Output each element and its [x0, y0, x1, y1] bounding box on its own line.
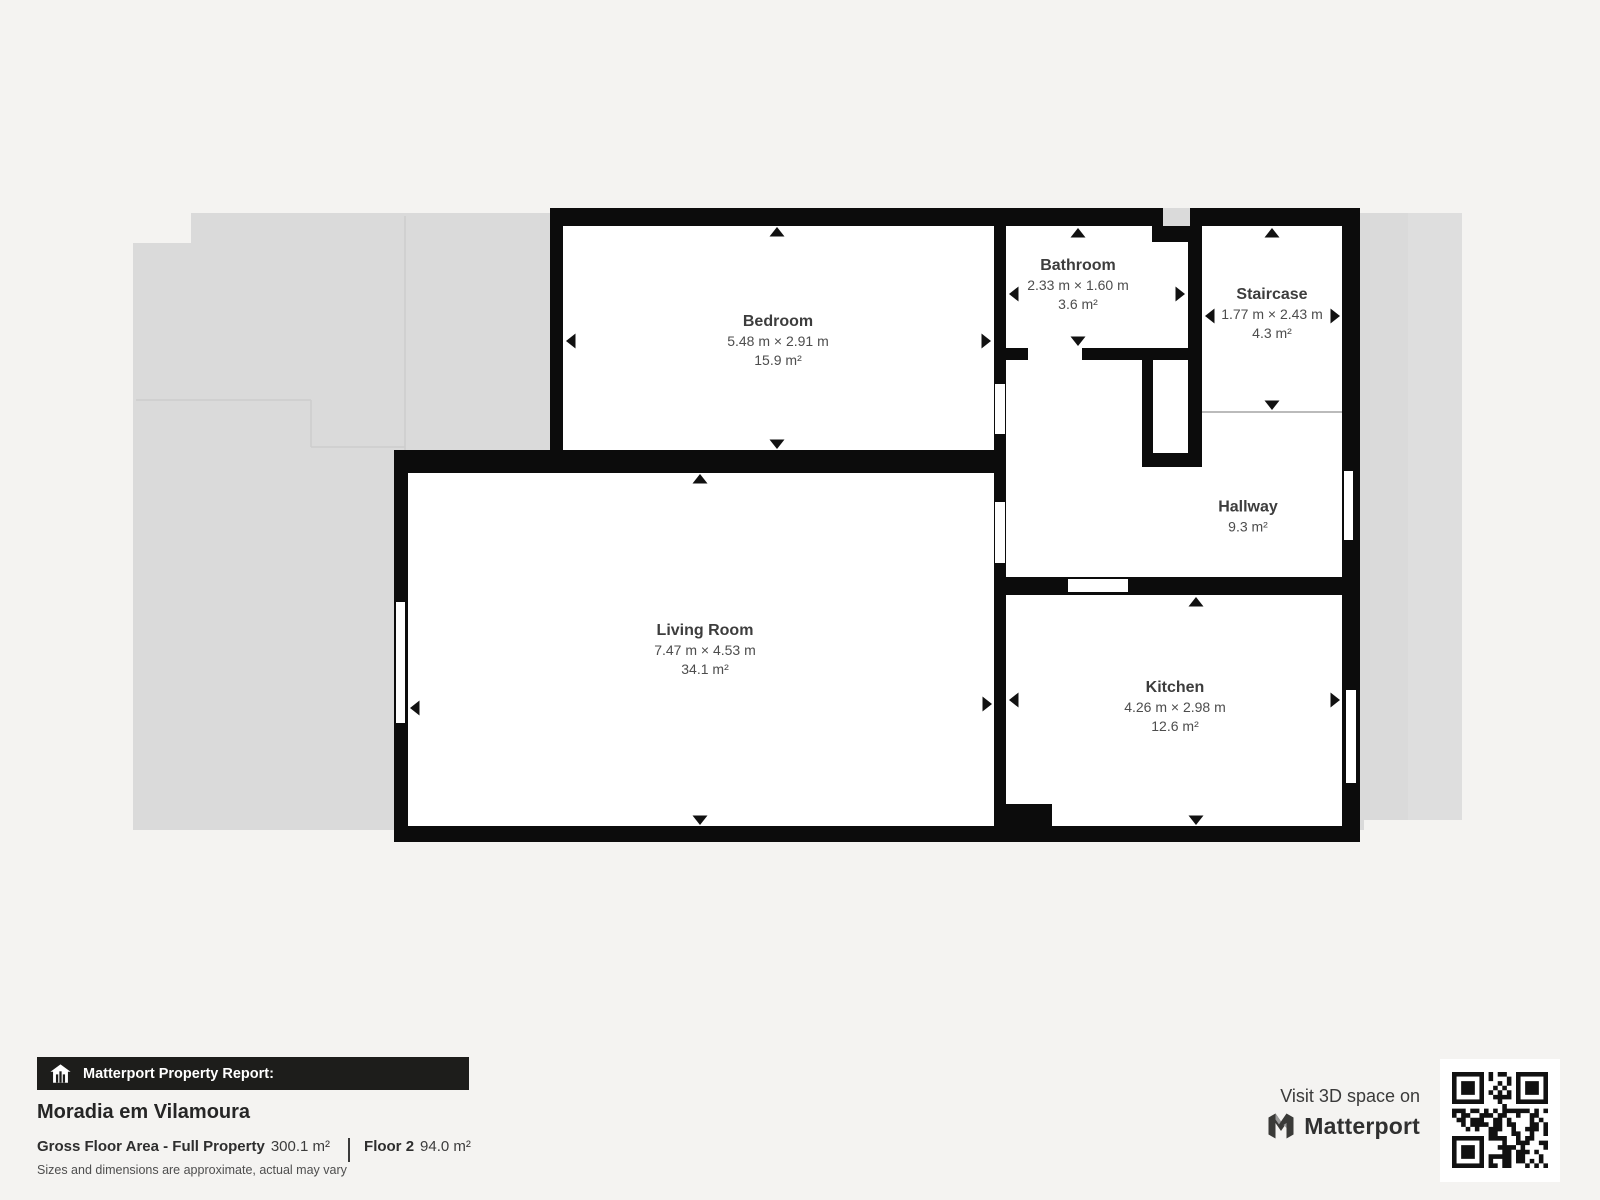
room-dimensions: 2.33 m × 1.60 m [1027, 276, 1129, 295]
bathroom-door [1028, 348, 1082, 360]
floor-area-value: 94.0 m² [420, 1138, 471, 1155]
room-label-kitchen: Kitchen 4.26 m × 2.98 m 12.6 m² [1124, 678, 1226, 736]
room-name: Bedroom [727, 312, 829, 332]
property-name: Moradia em Vilamoura [37, 1101, 250, 1124]
matterport-report-house-icon [50, 1063, 71, 1084]
floor-label: Floor 2 [364, 1138, 414, 1155]
room-label-bathroom: Bathroom 2.33 m × 1.60 m 3.6 m² [1027, 256, 1129, 314]
room-name: Kitchen [1124, 678, 1226, 698]
exterior-notch [1163, 208, 1190, 226]
room-name: Hallway [1218, 498, 1278, 518]
disclaimer-text: Sizes and dimensions are approximate, ac… [37, 1163, 347, 1177]
backdrop-right-band [1408, 213, 1462, 820]
room-area: 4.3 m² [1221, 324, 1323, 343]
kitchen-door [1068, 579, 1128, 592]
room-dimensions: 7.47 m × 4.53 m [654, 641, 756, 660]
room-label-staircase: Staircase 1.77 m × 2.43 m 4.3 m² [1221, 285, 1323, 343]
closet-floor [1153, 360, 1188, 453]
visit-3d-text: Visit 3D space on [1266, 1086, 1420, 1107]
room-name: Staircase [1221, 285, 1323, 305]
room-name: Bathroom [1027, 256, 1129, 276]
room-label-bedroom: Bedroom 5.48 m × 2.91 m 15.9 m² [727, 312, 829, 370]
room-label-hallway: Hallway 9.3 m² [1218, 498, 1278, 537]
hallway-window [1344, 471, 1353, 540]
kitchen-window [1346, 690, 1356, 783]
living-room-window [396, 602, 405, 723]
room-label-living-room: Living Room 7.47 m × 4.53 m 34.1 m² [654, 621, 756, 679]
gross-floor-area-label: Gross Floor Area - Full Property [37, 1138, 265, 1155]
room-area: 3.6 m² [1027, 295, 1129, 314]
gross-floor-area-value: 300.1 m² [271, 1138, 330, 1155]
matterport-logo: Matterport [1266, 1111, 1420, 1141]
room-dimensions: 5.48 m × 2.91 m [727, 332, 829, 351]
room-area: 34.1 m² [654, 660, 756, 679]
visit-3d-block: Visit 3D space on Matterport [1266, 1086, 1420, 1141]
kitchen-step-wall [1006, 804, 1052, 830]
matterport-logo-icon [1266, 1111, 1296, 1141]
qr-code-pattern [1452, 1072, 1548, 1168]
brand-wordmark: Matterport [1304, 1113, 1420, 1140]
room-dimensions: 1.77 m × 2.43 m [1221, 305, 1323, 324]
report-bar-title: Matterport Property Report: [83, 1066, 274, 1082]
report-bar: Matterport Property Report: [37, 1057, 469, 1090]
room-name: Living Room [654, 621, 756, 641]
floor-area-summary: Gross Floor Area - Full Property 300.1 m… [37, 1138, 475, 1162]
room-area: 15.9 m² [727, 351, 829, 370]
bedroom-door [995, 384, 1005, 434]
room-area: 9.3 m² [1218, 518, 1278, 537]
floor-plan [0, 0, 1600, 1200]
room-dimensions: 4.26 m × 2.98 m [1124, 698, 1226, 717]
room-area: 12.6 m² [1124, 717, 1226, 736]
matterport-floorplan-report: { "floor_plan": { "floor_label_context":… [0, 0, 1600, 1200]
qr-code [1440, 1059, 1560, 1182]
divider [348, 1138, 350, 1162]
living-room-door [995, 502, 1005, 563]
